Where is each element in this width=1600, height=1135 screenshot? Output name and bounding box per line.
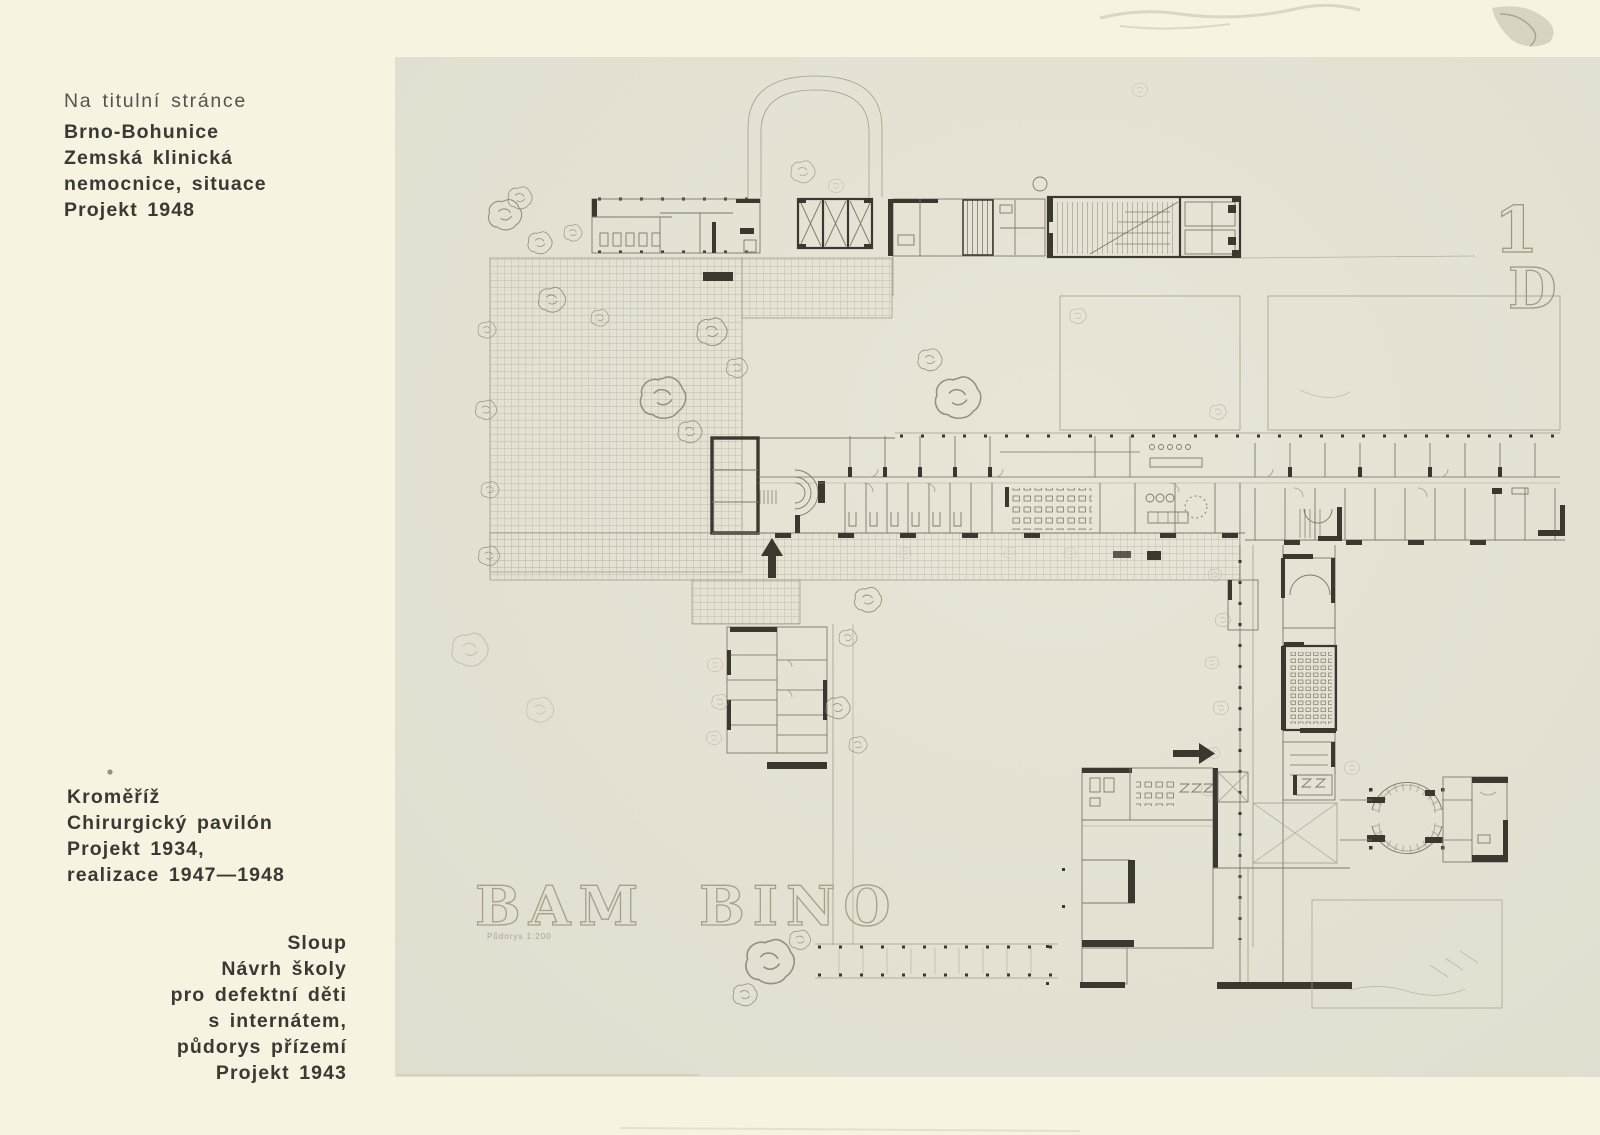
caption-line: Návrh školy bbox=[40, 956, 347, 982]
right-wing bbox=[1173, 545, 1336, 988]
caption-line: pro defektní děti bbox=[40, 982, 347, 1008]
chair-marks bbox=[1180, 784, 1213, 792]
bambino-text: BAM BINO bbox=[475, 874, 898, 938]
caption-line: Projekt 1948 bbox=[64, 197, 267, 223]
scale-note: Půdorys 1:200 bbox=[487, 932, 552, 941]
caption-line: Chirurgický pavilón bbox=[67, 810, 285, 836]
pergola-colonnade bbox=[815, 944, 1058, 978]
caption-line: nemocnice, situace bbox=[64, 171, 267, 197]
caption-title-page: Na titulní stránce Brno-Bohunice Zemská … bbox=[64, 88, 267, 223]
north-wing-middle-block bbox=[888, 199, 1045, 296]
figure-number: 1 D bbox=[1494, 193, 1557, 322]
classroom-desks bbox=[1136, 780, 1174, 806]
service-wing bbox=[592, 199, 760, 253]
east-pavilion bbox=[1312, 777, 1508, 1008]
caption-line: půdorys přízemí bbox=[40, 1034, 347, 1060]
hall-seating bbox=[1289, 652, 1332, 724]
apse-curve bbox=[1290, 575, 1330, 595]
terrace-grid bbox=[490, 258, 1240, 624]
floor-plan-drawing: BAM BINO Půdorys 1:200 1 D bbox=[395, 57, 1600, 1077]
book-page: Na titulní stránce Brno-Bohunice Zemská … bbox=[0, 0, 1600, 1135]
caption-line: s internátem, bbox=[40, 1008, 347, 1034]
dayroom-seating bbox=[1012, 488, 1092, 530]
garage-gates bbox=[798, 199, 872, 249]
caption-line: Projekt 1943 bbox=[40, 1060, 347, 1086]
stair-hall bbox=[1033, 177, 1475, 258]
smudge-blob bbox=[1492, 6, 1554, 46]
caption-line: Sloup bbox=[40, 930, 347, 956]
entrance-bar bbox=[703, 272, 733, 281]
bambino-inscription: BAM BINO Půdorys 1:200 bbox=[475, 874, 898, 941]
caption-line: realizace 1947—1948 bbox=[67, 862, 285, 888]
floor-plan-plate: BAM BINO Půdorys 1:200 1 D bbox=[395, 57, 1600, 1077]
flagpole-circle bbox=[1033, 177, 1047, 191]
smudge-blob-detail bbox=[1500, 14, 1536, 46]
caption-line: Brno-Bohunice bbox=[64, 119, 267, 145]
upper-courtyards bbox=[1060, 296, 1560, 430]
school-block bbox=[1046, 768, 1352, 989]
entry-arch-driveway bbox=[748, 76, 882, 197]
south-terrace bbox=[1312, 900, 1502, 1008]
caption-sloup: Sloup Návrh školy pro defektní děti s in… bbox=[40, 930, 347, 1086]
rotunda-court bbox=[1340, 761, 1472, 854]
ink-speck bbox=[107, 769, 112, 774]
caption-kromeriz: Kroměříž Chirurgický pavilón Projekt 193… bbox=[67, 784, 285, 888]
caption-note: Na titulní stránce bbox=[64, 88, 267, 114]
figure-letter-d: D bbox=[1508, 256, 1557, 322]
smudge-streak bbox=[1100, 5, 1360, 18]
caption-line: Zemská klinická bbox=[64, 145, 267, 171]
courtyard-arrow bbox=[1173, 743, 1215, 764]
caption-line: Projekt 1934, bbox=[67, 836, 285, 862]
bottom-edge-mark bbox=[620, 1128, 1080, 1131]
dark-storage-room bbox=[963, 200, 993, 255]
caption-line: Kroměříž bbox=[67, 784, 285, 810]
isolation-pavilion bbox=[706, 627, 827, 769]
smudge-streak bbox=[1120, 24, 1230, 29]
